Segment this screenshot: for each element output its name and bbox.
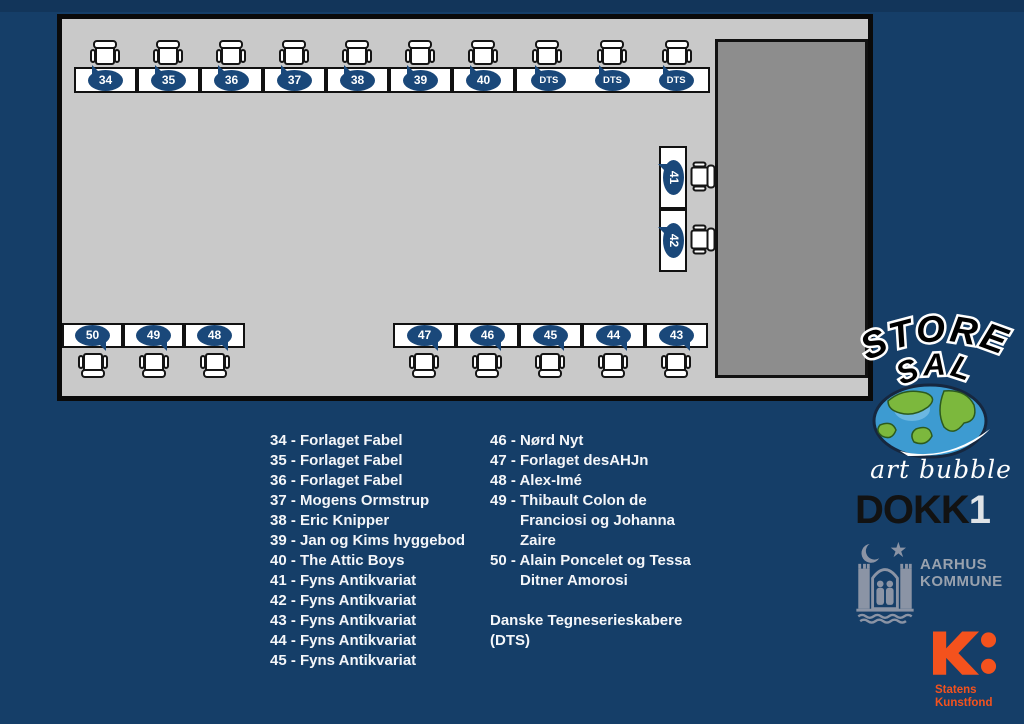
legend-entry: 47 - Forlaget desAHJn [490,451,698,471]
table-34: 34 [74,67,137,93]
chair-icon [405,40,435,67]
table-41: 41 [659,146,687,209]
chair-icon [153,40,183,67]
speech-bubble-badge: 47 [407,325,442,346]
table-42: 42 [659,209,687,272]
chair-icon [661,351,691,378]
chair-icon [139,351,169,378]
legend-entry: 45 - Fyns Antikvariat [270,651,500,671]
table-48: 48 [184,323,245,348]
legend-entry: 36 - Forlaget Fabel [270,471,500,491]
legend-entry: 38 - Eric Knipper [270,511,500,531]
chair-icon [468,40,498,67]
chair-icon [90,40,120,67]
store-sal-logo: STORE SAL [850,297,1022,393]
chair-icon [279,40,309,67]
speech-bubble-badge: 37 [277,70,312,91]
chair-icon [409,351,439,378]
table-45: 45 [519,323,582,348]
speech-bubble-badge: 45 [533,325,568,346]
aarhus-kommune-label: AARHUS KOMMUNE [920,556,1003,590]
speech-bubble-badge: 39 [403,70,438,91]
chair-icon [598,351,628,378]
table-36: 36 [200,67,263,93]
legend-right-column: 46 - Nørd Nyt 47 - Forlaget desAHJn 48 -… [490,431,698,651]
speech-bubble-badge: 36 [214,70,249,91]
speech-bubble-badge: DTS [595,70,630,91]
dokk1-text: DOKK [855,488,969,532]
legend-entry: 34 - Forlaget Fabel [270,431,500,451]
table-44: 44 [582,323,645,348]
chair-icon [662,40,692,67]
legend-entry: 35 - Forlaget Fabel [270,451,500,471]
legend-entry: 44 - Fyns Antikvariat [270,631,500,651]
legend-entry: 49 - Thibault Colon de Franciosi og Joha… [490,491,698,551]
stage-area [715,39,868,378]
table-47: 47 [393,323,456,348]
speech-bubble-badge: 38 [340,70,375,91]
chair-icon [597,40,627,67]
aarhus-line1: AARHUS [920,556,1003,573]
speech-bubble-badge: DTS [659,70,694,91]
legend-entry: 39 - Jan og Kims hyggebod [270,531,500,551]
chair-icon [200,351,230,378]
chair-icon [216,40,246,67]
aarhus-line2: KOMMUNE [920,573,1003,590]
kunstfond-line2: Kunstfond [935,697,992,710]
speech-bubble-badge: 49 [136,325,171,346]
speech-bubble-badge: 50 [75,325,110,346]
table-40: 40 [452,67,515,93]
legend-entry: 48 - Alex-Imé [490,471,698,491]
speech-bubble-badge: 34 [88,70,123,91]
table-46: 46 [456,323,519,348]
table-50: 50 [62,323,123,348]
dts-note: Danske Tegneserieskabere (DTS) [490,611,698,651]
speech-bubble-badge: DTS [531,70,566,91]
table-43: 43 [645,323,708,348]
kunstfond-line1: Statens [935,684,992,697]
aarhus-seal-icon [856,540,914,624]
speech-bubble-badge: 40 [466,70,501,91]
speech-bubble-badge: 35 [151,70,186,91]
legend-entry: 50 - Alain Poncelet og Tessa Ditner Amor… [490,551,698,591]
kunstfond-k-icon [933,631,997,679]
speech-bubble-badge: 46 [470,325,505,346]
legend-entry: 41 - Fyns Antikvariat [270,571,500,591]
table-37: 37 [263,67,326,93]
chair-icon [689,162,716,192]
chair-icon [535,351,565,378]
legend-entry: 40 - The Attic Boys [270,551,500,571]
chair-icon [472,351,502,378]
legend-entry: 37 - Mogens Ormstrup [270,491,500,511]
chair-icon [78,351,108,378]
legend-entry: 42 - Fyns Antikvariat [270,591,500,611]
table-38: 38 [326,67,389,93]
table-dts: DTS DTS DTS [515,67,710,93]
kunstfond-label: Statens Kunstfond [935,684,992,710]
chair-icon [342,40,372,67]
speech-bubble-badge: 42 [663,223,684,258]
speech-bubble-badge: 41 [663,160,684,195]
legend-entry: 43 - Fyns Antikvariat [270,611,500,631]
dokk1-number: 1 [969,488,990,532]
chair-icon [532,40,562,67]
speech-bubble-badge: 43 [659,325,694,346]
art-bubble-label: art bubble [860,455,1022,484]
speech-bubble-badge: 48 [197,325,232,346]
table-49: 49 [123,323,184,348]
top-strip [0,0,1024,12]
dts-note-line: (DTS) [490,631,698,651]
speech-bubble-badge: 44 [596,325,631,346]
globe-icon [864,383,1014,461]
legend-entry: 46 - Nørd Nyt [490,431,698,451]
table-35: 35 [137,67,200,93]
dokk1-logo: DOKK1 [855,492,990,528]
chair-icon [689,225,716,255]
legend-left-column: 34 - Forlaget Fabel 35 - Forlaget Fabel … [270,431,500,671]
table-39: 39 [389,67,452,93]
dts-note-line: Danske Tegneserieskabere [490,611,698,631]
